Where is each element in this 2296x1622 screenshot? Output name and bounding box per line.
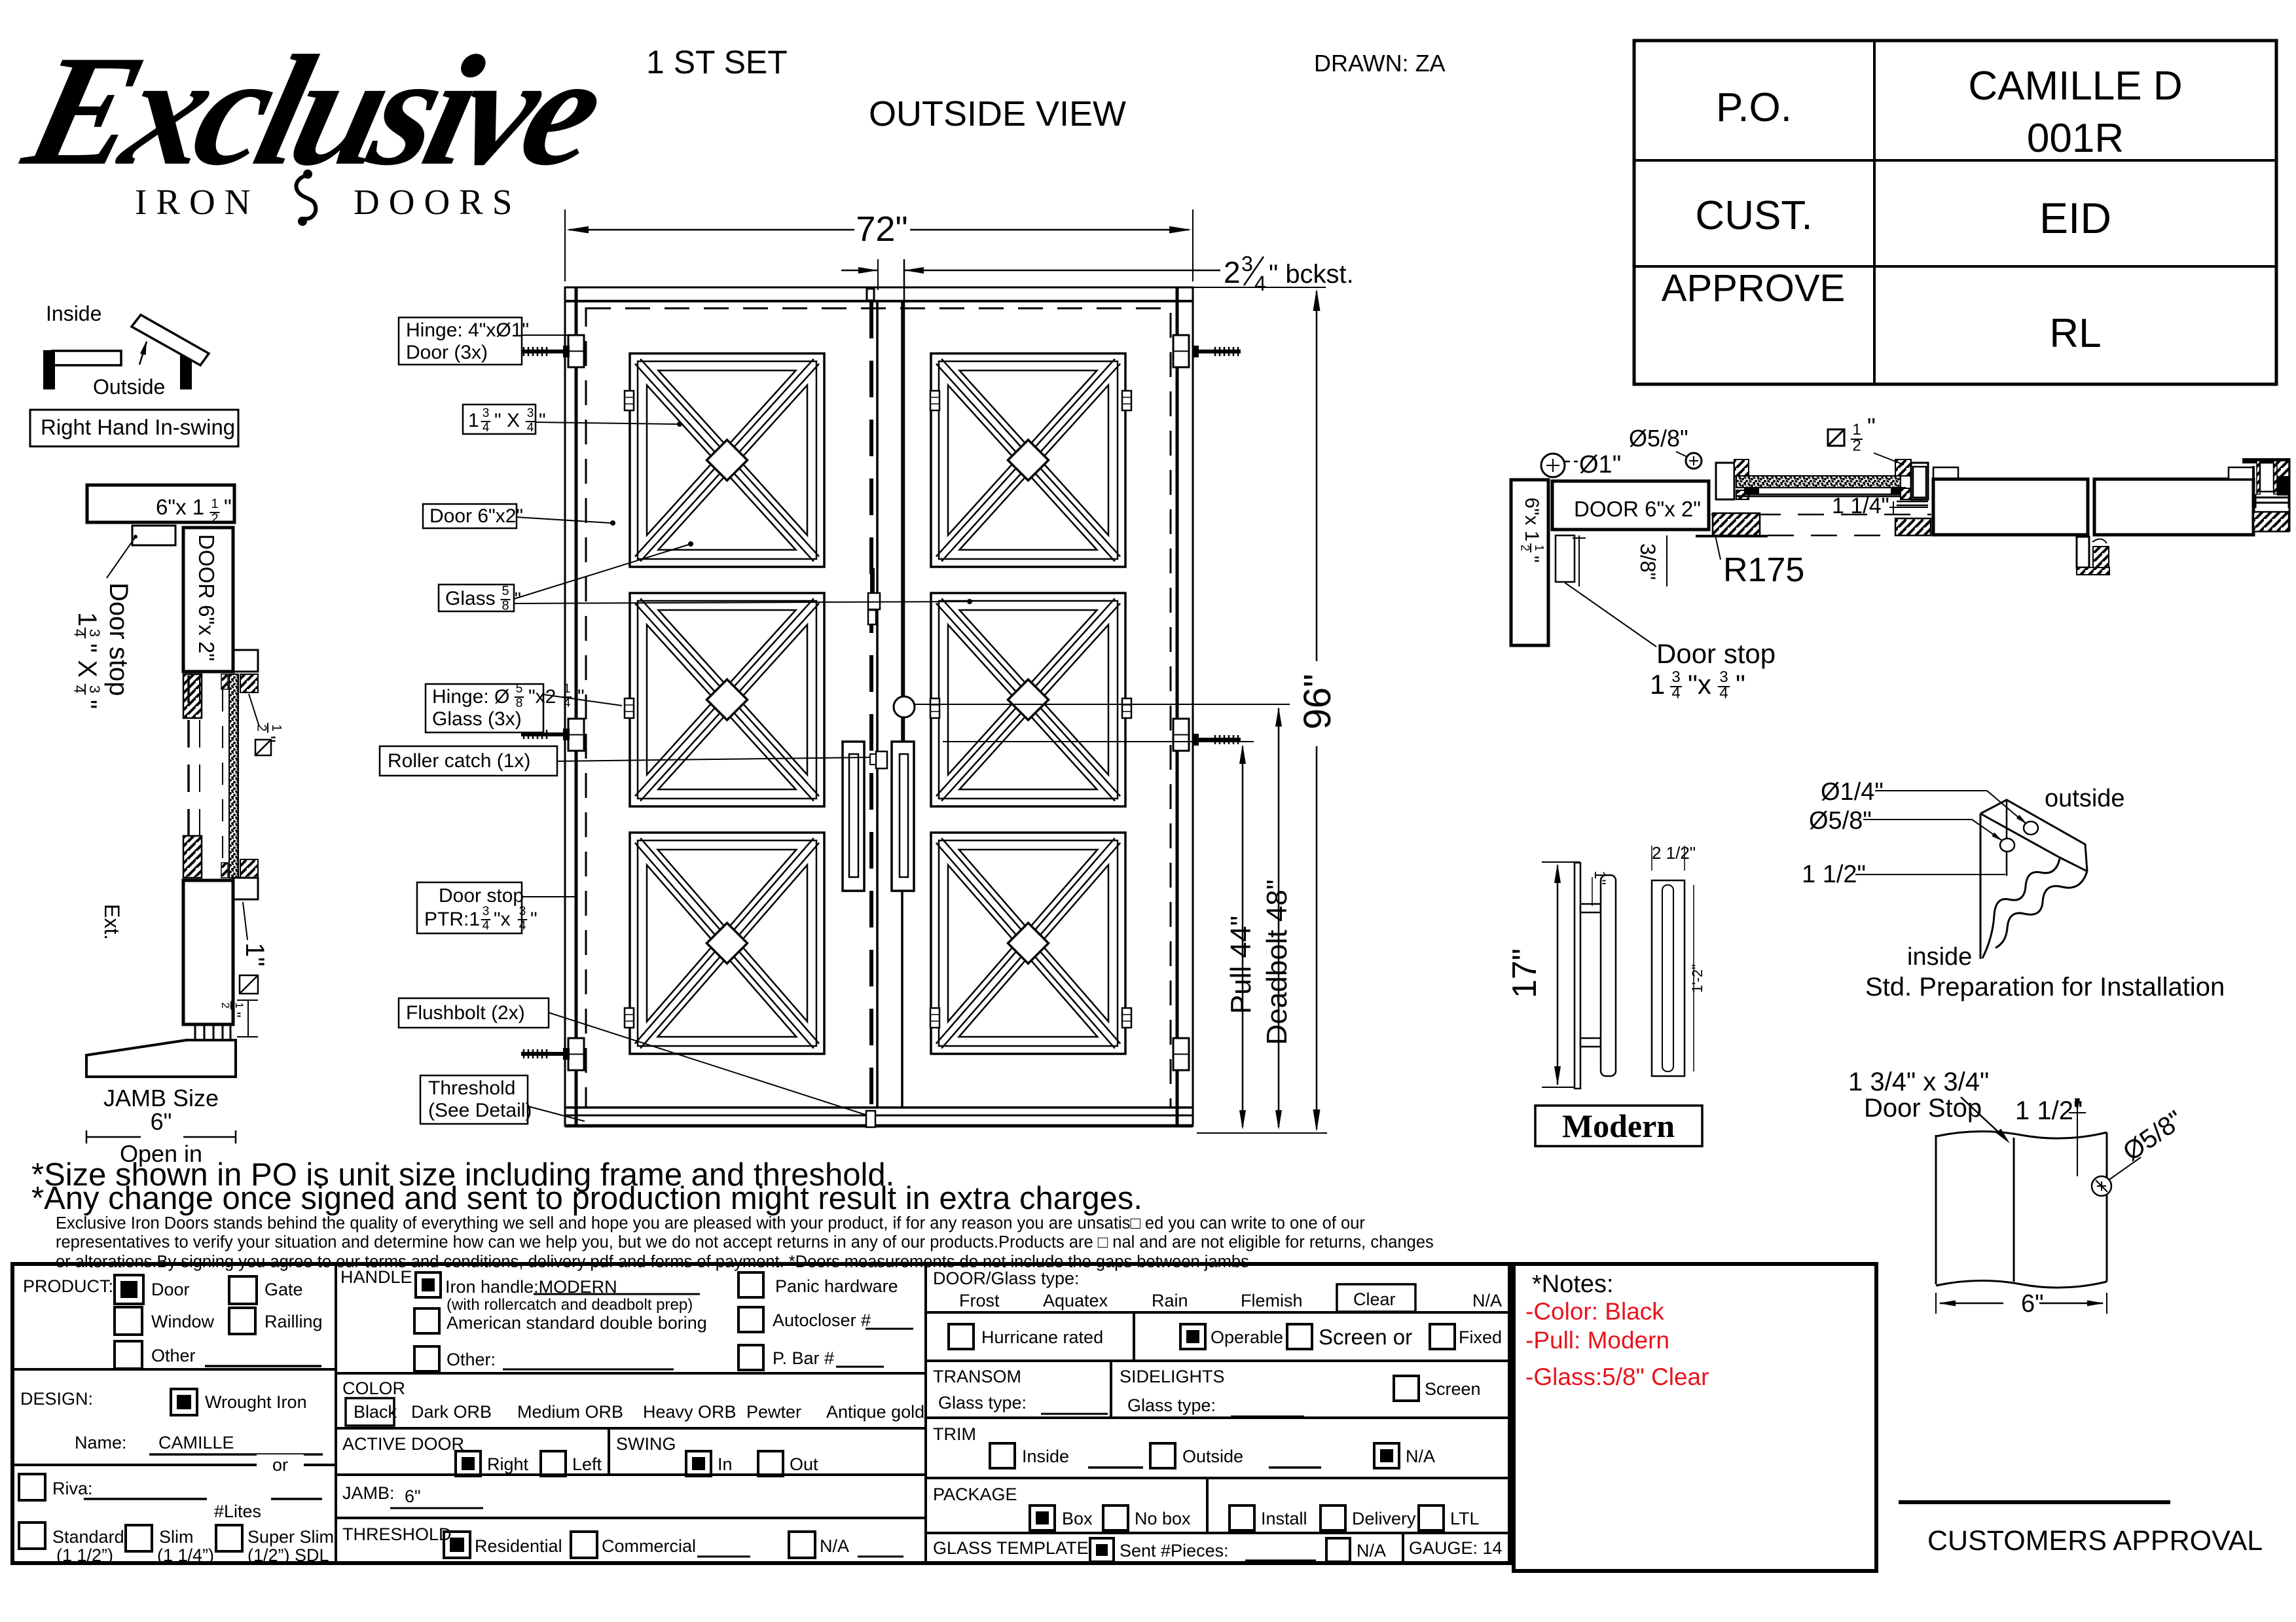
svg-text:3: 3 (86, 685, 103, 693)
svg-text:Flemish: Flemish (1241, 1291, 1303, 1310)
svg-text:Inside: Inside (46, 302, 101, 325)
svg-text:3: 3 (86, 629, 103, 637)
svg-text:Exclusive: Exclusive (9, 23, 617, 198)
svg-text:": " (1736, 669, 1745, 700)
svg-text:6": 6" (151, 1108, 172, 1135)
svg-text:PRODUCT:: PRODUCT: (23, 1276, 113, 1296)
svg-text:Rain: Rain (1152, 1291, 1188, 1310)
svg-text:1: 1 (269, 724, 283, 731)
svg-text:Outside: Outside (1182, 1447, 1243, 1466)
svg-text:or: or (272, 1455, 288, 1475)
svg-text:CUSTOMERS APPROVAL: CUSTOMERS APPROVAL (1927, 1525, 2263, 1557)
svg-text:Door stop: Door stop (439, 885, 524, 907)
svg-text:3: 3 (483, 406, 490, 420)
svg-text:96": 96" (1296, 674, 1339, 729)
svg-text:Standard: Standard (52, 1527, 124, 1547)
svg-text:2: 2 (1519, 545, 1532, 551)
svg-text:THRESHOLD: THRESHOLD (342, 1524, 452, 1544)
svg-text:Residential: Residential (475, 1536, 562, 1556)
svg-text:PTR:1: PTR:1 (424, 909, 480, 930)
svg-text:Ext.: Ext. (100, 904, 124, 940)
svg-text:Ø5/8": Ø5/8" (1809, 807, 1872, 835)
svg-text:Door: Door (151, 1280, 190, 1299)
svg-text:1: 1 (211, 497, 218, 511)
svg-text:Roller catch (1x): Roller catch (1x) (388, 750, 530, 772)
svg-text:": " (73, 700, 101, 709)
svg-text:DOOR/Glass type:: DOOR/Glass type: (933, 1269, 1080, 1288)
svg-text:*Notes:: *Notes: (1532, 1271, 1614, 1298)
svg-text:6"x 1: 6"x 1 (1521, 497, 1542, 541)
svg-text:Left: Left (572, 1454, 602, 1474)
svg-text:Flushbolt (2x): Flushbolt (2x) (406, 1002, 525, 1024)
svg-text:-Color: Black: -Color: Black (1525, 1298, 1664, 1325)
svg-text:Glass type:: Glass type: (938, 1393, 1027, 1413)
svg-text:Outside: Outside (93, 375, 165, 399)
svg-text:Riva:: Riva: (52, 1479, 93, 1498)
svg-text:1'-2": 1'-2" (1689, 964, 1705, 993)
svg-text:1": 1" (1591, 871, 1609, 885)
svg-text:1": 1" (240, 943, 269, 966)
svg-text:6"x 1: 6"x 1 (156, 495, 204, 519)
svg-text:outside: outside (2045, 785, 2125, 812)
svg-text:2 1/2": 2 1/2" (1652, 843, 1696, 863)
svg-text:Operable: Operable (1211, 1327, 1283, 1347)
svg-text:17": 17" (1506, 948, 1544, 998)
svg-text:Medium ORB: Medium ORB (517, 1402, 623, 1422)
svg-text:Door Stop: Door Stop (1864, 1094, 1982, 1123)
svg-text:"x: "x (494, 909, 511, 930)
svg-text:Right: Right (487, 1454, 529, 1474)
svg-text:N/A: N/A (820, 1536, 849, 1556)
svg-text:3: 3 (1241, 252, 1253, 276)
svg-text:American standard double borin: American standard double boring (446, 1313, 707, 1333)
svg-text:Name:: Name: (75, 1433, 127, 1452)
svg-text:RL: RL (2049, 311, 2101, 356)
svg-text:3: 3 (1671, 668, 1680, 686)
svg-text:1 3/4" x 3/4": 1 3/4" x 3/4" (1848, 1068, 1989, 1096)
svg-text:N/A: N/A (1472, 1291, 1502, 1310)
svg-text:Dark ORB: Dark ORB (411, 1402, 492, 1422)
svg-text:4: 4 (1254, 272, 1266, 295)
svg-text:": " (1867, 413, 1876, 440)
svg-text:(1 1/2”): (1 1/2”) (56, 1545, 113, 1565)
svg-text:Clear: Clear (1353, 1289, 1396, 1309)
svg-text:Screen: Screen (1425, 1379, 1481, 1399)
svg-text:-Pull: Modern: -Pull: Modern (1525, 1327, 1669, 1354)
svg-text:1: 1 (468, 410, 479, 431)
svg-text:5: 5 (516, 682, 523, 696)
svg-text:5: 5 (501, 584, 509, 598)
svg-text:Std. Preparation for Installat: Std. Preparation for Installation (1865, 973, 2225, 1001)
svg-text:": " (1521, 556, 1542, 563)
svg-text:4: 4 (519, 919, 526, 933)
svg-text:2: 2 (219, 1002, 232, 1008)
svg-text:Ø5/8": Ø5/8" (2118, 1105, 2189, 1166)
svg-text:Exclusive Iron Doors stands be: Exclusive Iron Doors stands behind the q… (56, 1214, 1365, 1233)
svg-text:DOOR 6"x 2": DOOR 6"x 2" (194, 534, 219, 661)
svg-text:1: 1 (1533, 545, 1546, 551)
svg-text:Aquatex: Aquatex (1043, 1291, 1108, 1310)
svg-text:TRIM: TRIM (933, 1424, 976, 1444)
svg-text:": " (539, 410, 546, 431)
svg-text:1: 1 (233, 1002, 246, 1008)
svg-text:Ø1": Ø1" (1579, 451, 1621, 478)
svg-text:DOOR 6"x 2": DOOR 6"x 2" (1574, 497, 1701, 521)
svg-text:2: 2 (255, 724, 269, 731)
svg-text:DRAWN: ZA: DRAWN: ZA (1314, 50, 1446, 77)
svg-text:Modern: Modern (1562, 1108, 1675, 1144)
svg-text:OUTSIDE VIEW: OUTSIDE VIEW (869, 94, 1126, 134)
svg-text:Delivery: Delivery (1352, 1509, 1416, 1528)
svg-text:HANDLE: HANDLE (340, 1267, 412, 1287)
svg-text:Other:: Other: (446, 1350, 496, 1369)
svg-text:N/A: N/A (1406, 1447, 1435, 1466)
svg-text:4: 4 (527, 421, 534, 435)
svg-text:#Lites: #Lites (214, 1502, 261, 1521)
svg-text:Box: Box (1062, 1509, 1093, 1528)
svg-text:DOORS: DOORS (354, 182, 521, 222)
svg-text:6": 6" (2021, 1290, 2044, 1318)
svg-text:Install: Install (1261, 1509, 1307, 1528)
svg-text:CAMILLE: CAMILLE (158, 1433, 234, 1452)
svg-text:JAMB Size: JAMB Size (103, 1085, 219, 1111)
svg-text:Fixed: Fixed (1459, 1327, 1502, 1347)
svg-text:R175: R175 (1723, 551, 1804, 589)
svg-text:001R: 001R (2027, 116, 2124, 161)
svg-text:6": 6" (405, 1487, 421, 1506)
svg-text:CAMILLE D: CAMILLE D (1968, 63, 2182, 109)
svg-text:": " (224, 495, 232, 519)
svg-text:Door 6"x2": Door 6"x2" (429, 505, 523, 527)
svg-text:IRON: IRON (135, 182, 259, 222)
svg-text:N/A: N/A (1357, 1541, 1386, 1560)
svg-text:3: 3 (483, 905, 490, 918)
svg-text:2: 2 (1852, 437, 1861, 454)
svg-text:1: 1 (73, 612, 101, 626)
svg-text:JAMB:: JAMB: (342, 1483, 395, 1503)
svg-text:SIDELIGHTS: SIDELIGHTS (1120, 1367, 1225, 1386)
svg-text:": " (226, 1012, 244, 1018)
svg-text:LTL: LTL (1450, 1509, 1480, 1528)
svg-text:" bckst.: " bckst. (1269, 260, 1354, 289)
svg-text:4: 4 (483, 421, 490, 435)
svg-text:(1/2”) SDL: (1/2”) SDL (247, 1545, 329, 1565)
svg-text:Autocloser #: Autocloser # (773, 1310, 871, 1330)
svg-text:" X: " X (73, 643, 101, 677)
svg-text:ACTIVE DOOR: ACTIVE DOOR (342, 1434, 464, 1454)
svg-text:In: In (718, 1454, 733, 1474)
svg-text:4: 4 (71, 629, 88, 637)
svg-text:Panic hardware: Panic hardware (775, 1276, 898, 1296)
svg-text:"x: "x (1688, 669, 1711, 700)
svg-text:Out: Out (790, 1454, 818, 1474)
svg-text:Glass: Glass (445, 588, 496, 609)
svg-text:COLOR: COLOR (342, 1379, 405, 1398)
svg-text:No box: No box (1135, 1509, 1191, 1528)
svg-text:Commercial: Commercial (602, 1536, 696, 1556)
svg-text:Inside: Inside (1022, 1447, 1069, 1466)
svg-text:4: 4 (71, 685, 88, 693)
svg-text:1 1/2": 1 1/2" (2015, 1096, 2083, 1125)
svg-text:Wrought Iron: Wrought Iron (205, 1392, 307, 1412)
svg-text:": " (530, 909, 538, 930)
svg-text:72": 72" (856, 209, 907, 249)
svg-text:Sent #Pieces:: Sent #Pieces: (1120, 1541, 1229, 1560)
svg-text:2: 2 (211, 511, 218, 526)
svg-text:Hurricane rated: Hurricane rated (981, 1327, 1103, 1347)
svg-text:GLASS TEMPLATE: GLASS TEMPLATE (933, 1538, 1089, 1558)
svg-text:Ø5/8": Ø5/8" (1629, 425, 1688, 452)
svg-text:Screen or: Screen or (1319, 1325, 1412, 1349)
svg-text:EID: EID (2039, 194, 2111, 242)
svg-text:P. Bar #: P. Bar # (773, 1348, 834, 1368)
svg-text:P.O.: P.O. (1716, 85, 1792, 130)
svg-text:PACKAGE: PACKAGE (933, 1485, 1017, 1504)
svg-text:Deadbolt 48": Deadbolt 48" (1261, 880, 1293, 1045)
svg-text:TRANSOM: TRANSOM (933, 1367, 1021, 1386)
svg-text:Ø1/4": Ø1/4" (1821, 778, 1884, 806)
svg-text:Right Hand In-swing: Right Hand In-swing (41, 415, 235, 439)
svg-text:*Any change once signed and se: *Any change once signed and sent to prod… (31, 1181, 1142, 1216)
svg-text:4: 4 (483, 919, 490, 933)
svg-text:representatives to verify your: representatives to verify your situation… (56, 1233, 1434, 1252)
svg-text:Hinge: 4"xØ1": Hinge: 4"xØ1" (406, 319, 529, 341)
svg-text:Gate: Gate (264, 1280, 303, 1299)
svg-text:Black: Black (354, 1402, 397, 1422)
svg-text:Pewter: Pewter (746, 1402, 801, 1422)
svg-text:1: 1 (1650, 669, 1665, 700)
svg-text:3: 3 (527, 406, 534, 420)
svg-text:(See Detail): (See Detail) (428, 1100, 532, 1121)
svg-text:4: 4 (1671, 684, 1680, 702)
svg-text:3: 3 (519, 905, 526, 918)
svg-text:inside: inside (1907, 943, 1972, 971)
svg-text:" X: " X (494, 410, 520, 431)
svg-text:1 ST SET: 1 ST SET (646, 44, 788, 81)
svg-text:-Glass:5/8" Clear: -Glass:5/8" Clear (1525, 1363, 1709, 1390)
svg-text:3/8": 3/8" (1636, 543, 1660, 580)
svg-text:4: 4 (1719, 684, 1728, 702)
svg-text:Pull 44": Pull 44" (1225, 916, 1257, 1014)
svg-text:(1 1/4”): (1 1/4”) (157, 1545, 214, 1565)
svg-text:1: 1 (1852, 421, 1861, 439)
svg-text:SWING: SWING (616, 1434, 676, 1454)
svg-text:Threshold: Threshold (428, 1077, 515, 1099)
svg-text:8: 8 (501, 598, 509, 613)
svg-text:Antique gold: Antique gold (826, 1402, 924, 1422)
svg-text:APPROVE: APPROVE (1662, 267, 1845, 310)
svg-text:3: 3 (1719, 668, 1728, 686)
svg-text:Door (3x): Door (3x) (406, 342, 488, 363)
svg-text:Heavy ORB: Heavy ORB (643, 1402, 737, 1422)
svg-text:Window: Window (151, 1312, 215, 1331)
svg-text:Other: Other (151, 1346, 196, 1365)
svg-text:Glass (3x): Glass (3x) (432, 708, 522, 730)
svg-text:Hinge: Ø: Hinge: Ø (432, 686, 509, 708)
svg-text:Super Slim: Super Slim (247, 1527, 334, 1547)
svg-text:Slim: Slim (159, 1527, 194, 1547)
svg-text:Railling: Railling (264, 1312, 323, 1331)
svg-text:"x2: "x2 (528, 686, 556, 708)
svg-text:Door stop: Door stop (104, 583, 133, 696)
svg-text:Glass type:: Glass type: (1127, 1396, 1216, 1415)
svg-text:DESIGN:: DESIGN: (20, 1389, 93, 1409)
svg-text:2: 2 (1224, 255, 1241, 289)
svg-text:Door stop: Door stop (1656, 638, 1776, 669)
svg-text:": " (577, 686, 585, 708)
svg-text:Frost: Frost (959, 1291, 1000, 1310)
svg-text:1: 1 (564, 682, 571, 696)
svg-text:(with rollercatch and deadbolt: (with rollercatch and deadbolt prep) (446, 1296, 693, 1314)
svg-text:GAUGE: 14: GAUGE: 14 (1409, 1538, 1503, 1558)
svg-text:CUST.: CUST. (1695, 193, 1812, 238)
